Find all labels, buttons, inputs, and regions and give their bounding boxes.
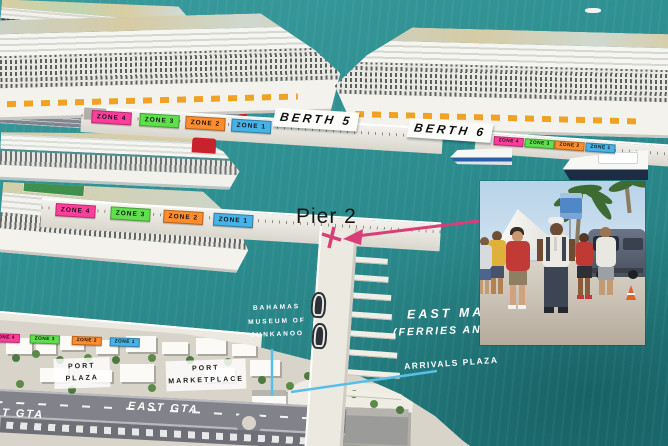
shorts (598, 267, 614, 280)
west-gta-road-label: T GTA (2, 407, 45, 421)
marina-finger (349, 349, 397, 358)
torso (576, 242, 593, 266)
pier2-zone-row: ZONE 4 ZONE 3 ZONE 2 ZONE 1 (55, 203, 56, 217)
leg (480, 280, 483, 294)
red-funnel (192, 137, 217, 153)
shoe (518, 305, 526, 309)
torso (596, 237, 616, 267)
zone4-chip: ZONE 4 (55, 203, 96, 218)
building (196, 338, 226, 354)
zone3-chip: ZONE 3 (30, 334, 60, 344)
east-marina-sublabel: (FERRIES AND (393, 323, 492, 338)
tour-sign (560, 193, 582, 219)
leg (510, 285, 516, 305)
tourist-denim-shorts (480, 239, 494, 299)
zone1-chip: ZONE 1 (231, 119, 272, 134)
port-plaza-line2: PLAZA (56, 372, 108, 386)
backpack-strap (546, 237, 550, 261)
torso (506, 241, 530, 271)
building (120, 364, 154, 382)
shoe (585, 295, 592, 299)
lifeboats (7, 93, 298, 107)
cruise-ship-berth6 (334, 26, 668, 139)
leg (599, 280, 605, 295)
zone1-chip: ZONE 1 (213, 213, 254, 228)
cruise-ship-berth5 (0, 11, 341, 120)
port-marketplace-line2: MARKETPLACE (168, 374, 244, 389)
zone4-chip: ZONE 4 (91, 110, 132, 125)
shoe (558, 307, 568, 313)
junkanoo-museum-label: BAHAMAS MUSEUM OF JUNKANOO (239, 300, 314, 343)
lifeboats (355, 111, 638, 124)
shorts (577, 266, 592, 278)
leg (498, 278, 503, 294)
leg (585, 278, 590, 295)
shorts (480, 269, 491, 280)
marina-finger (354, 275, 388, 283)
arm (569, 239, 575, 261)
arrivals-plaza-label: ARRIVALS PLAZA (404, 355, 499, 372)
tourist-red-tee (576, 233, 596, 311)
berth5-zone-row: ZONE 4 ZONE 3 ZONE 2 ZONE 1 (91, 110, 92, 124)
tourist-white-tee (596, 227, 618, 307)
port-map: T GTA EAST GTA PORT PLAZA PORT MARKETPLA… (0, 0, 668, 446)
building (250, 360, 280, 376)
bus-side-window (623, 238, 643, 250)
zone2-chip: ZONE 2 (163, 210, 204, 225)
zone2-chip: ZONE 2 (185, 116, 226, 131)
tour-guide-white-shirt (538, 217, 572, 321)
leg (578, 278, 583, 295)
tourist-red-jacket (506, 227, 532, 323)
shoe (544, 307, 554, 313)
backpack-strap (562, 237, 566, 261)
torso (480, 245, 492, 269)
shoe (577, 295, 584, 299)
leg (607, 280, 613, 295)
zone4-chip: ZONE 4 (0, 333, 20, 343)
museum-line3: JUNKANOO (240, 327, 314, 343)
zone3-chip: ZONE 3 (110, 206, 151, 221)
building (232, 344, 256, 356)
zone3-chip: ZONE 3 (139, 113, 180, 128)
marina-finger (350, 330, 395, 339)
marina-finger (352, 311, 392, 320)
pier2-label: Pier 2 (296, 205, 357, 229)
lanyard (554, 237, 557, 251)
small-boat (585, 8, 601, 13)
shorts (509, 271, 527, 285)
marina-finger (356, 257, 388, 265)
zone1-chip: ZONE 1 (110, 337, 140, 347)
port-marketplace-label: PORT MARKETPLACE (166, 359, 247, 392)
pants (544, 267, 568, 307)
traffic-cone (626, 285, 636, 300)
leg (519, 285, 525, 305)
building (162, 342, 188, 354)
bus-wheel (628, 270, 638, 279)
shoe (508, 305, 516, 309)
leg (485, 280, 489, 294)
port-plaza-label: PORT PLAZA (53, 357, 110, 389)
photo-inset-tourists (480, 181, 645, 345)
ferry-boat (450, 148, 512, 165)
arm (537, 239, 543, 261)
zone2-chip: ZONE 2 (72, 336, 102, 346)
marina-finger (353, 292, 391, 301)
